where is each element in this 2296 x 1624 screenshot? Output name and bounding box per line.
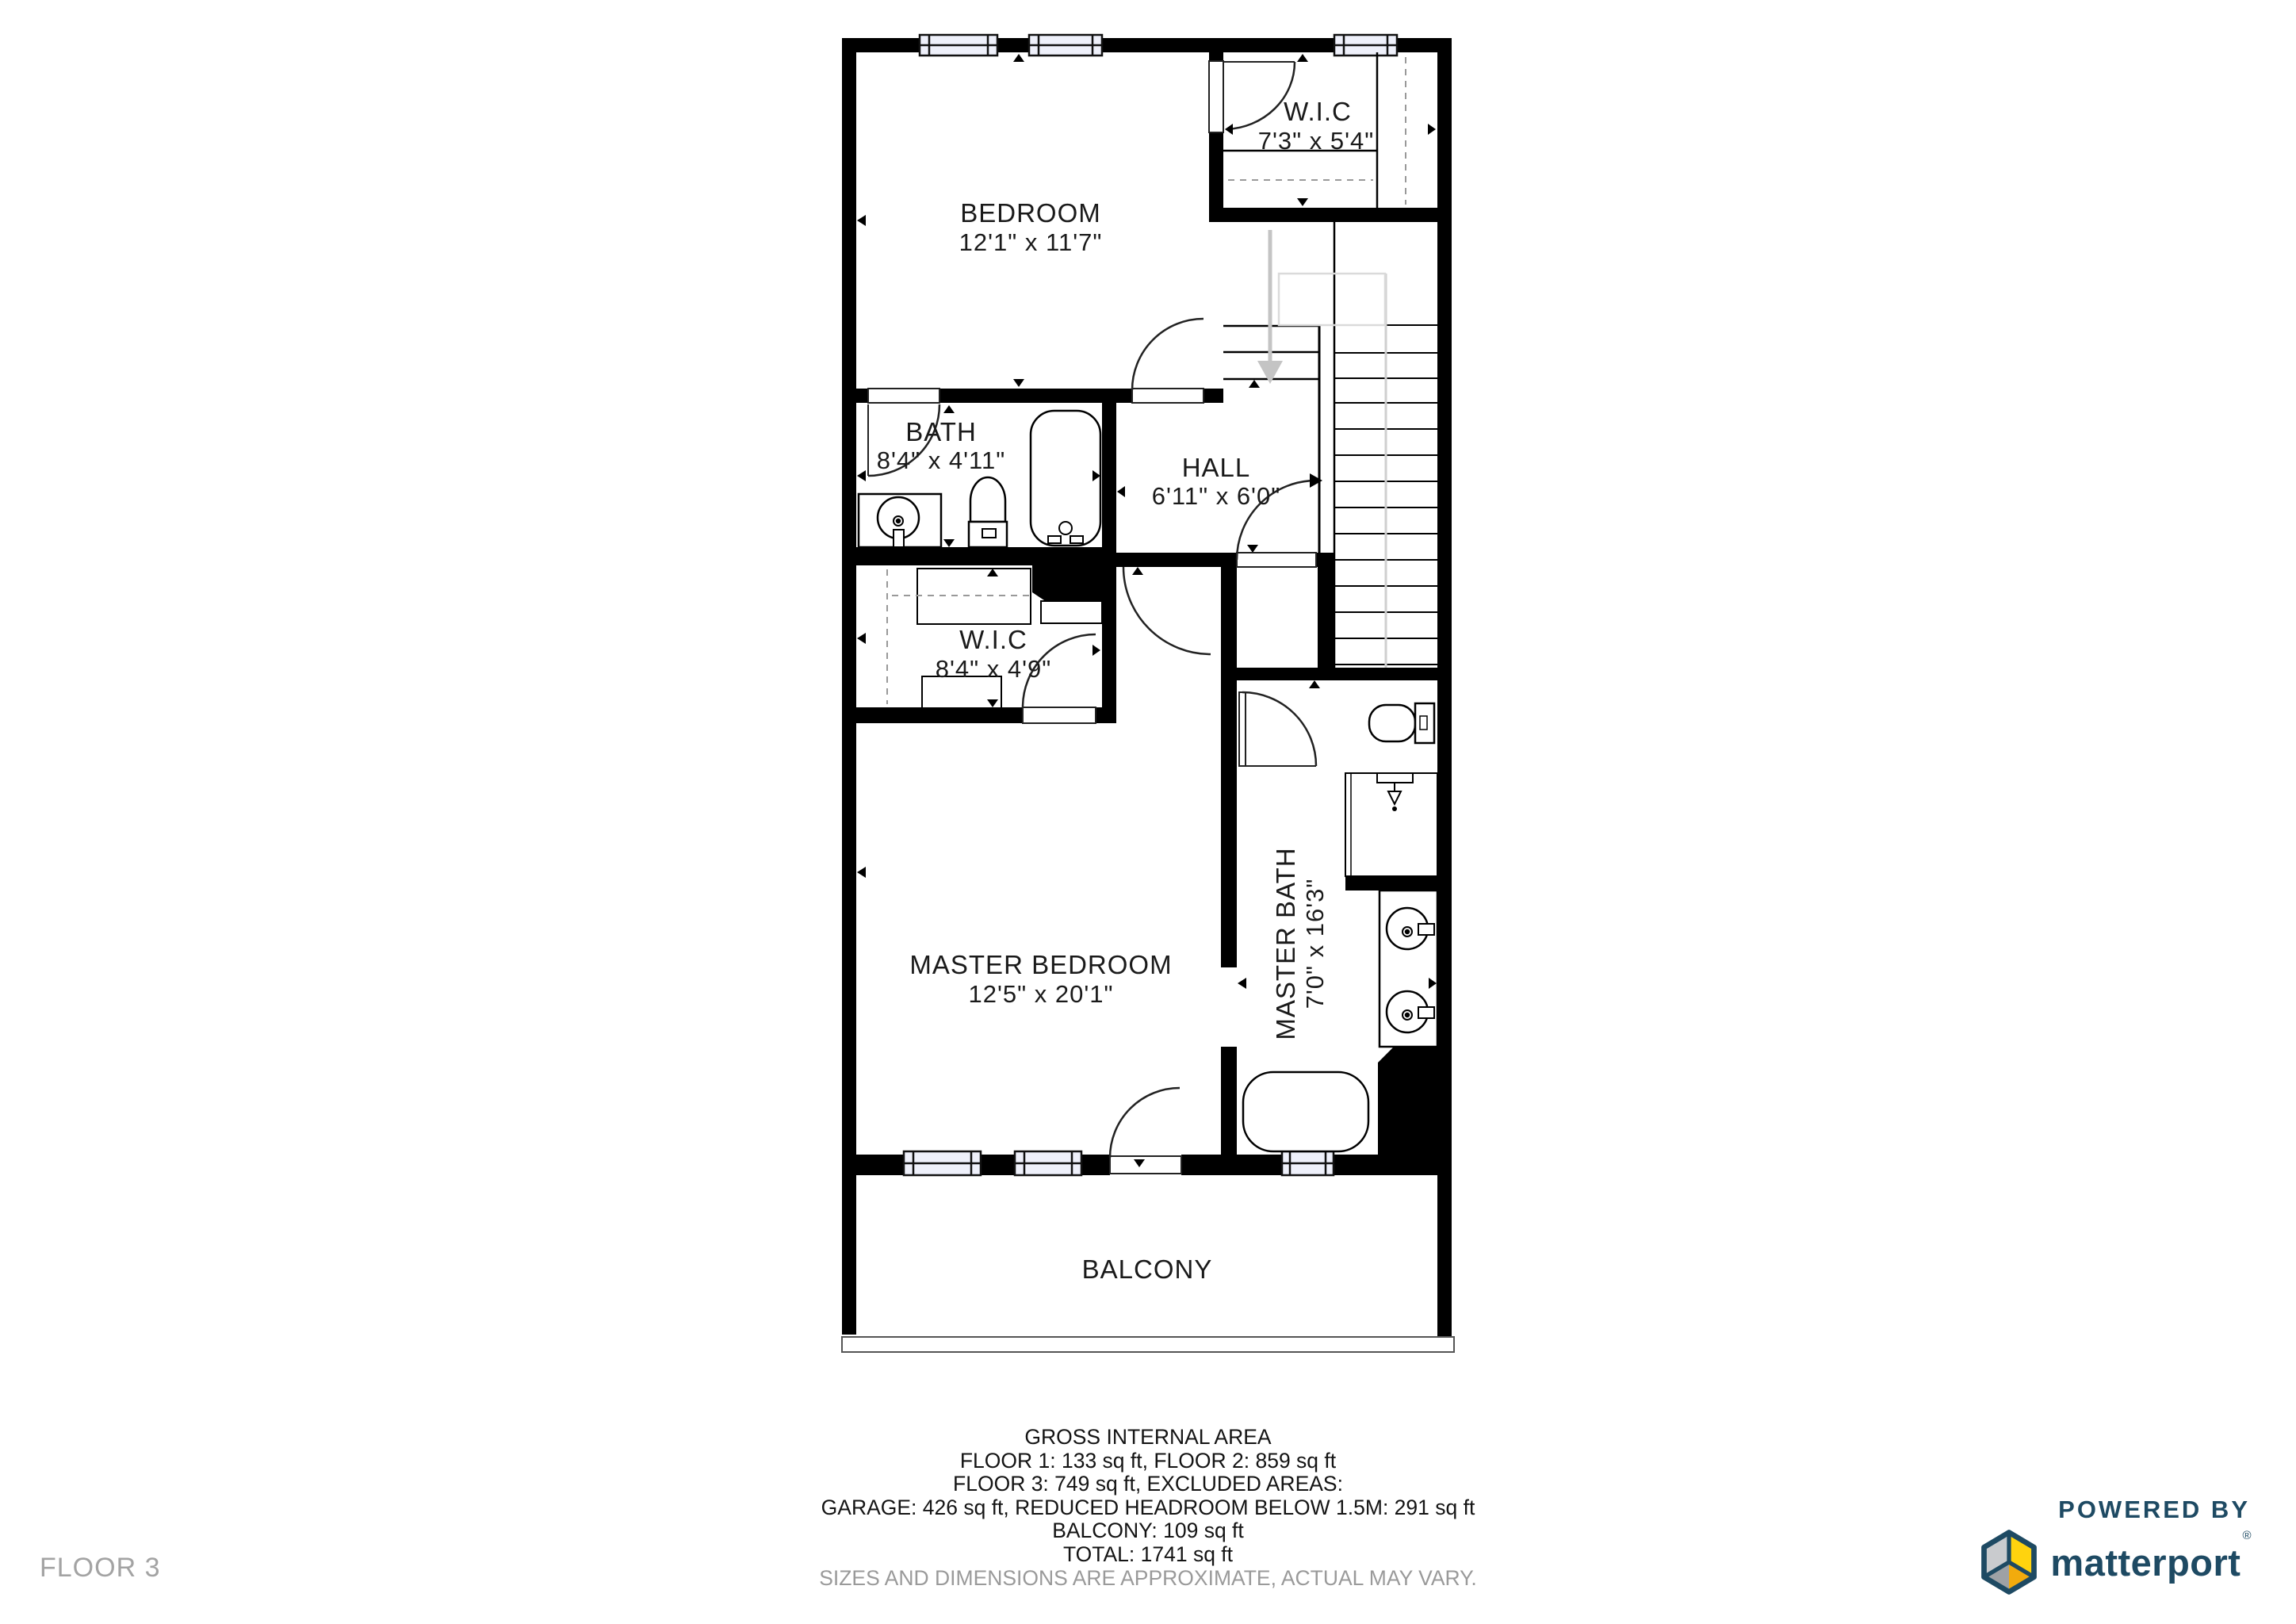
- room-label-bath: BATH: [905, 417, 977, 446]
- toilet: [969, 477, 1007, 547]
- door-leaf: [1132, 389, 1203, 403]
- door-arc: [1242, 692, 1316, 766]
- mbath-left-wall: [1221, 680, 1237, 967]
- window: [1029, 35, 1102, 56]
- door-arc: [1132, 319, 1203, 390]
- room-dims-bath: 8'4" x 4'11": [877, 446, 1005, 474]
- stair-hall-wall: [1318, 567, 1334, 668]
- area-summary-line: FLOOR 3: 749 sq ft, EXCLUDED AREAS:: [752, 1473, 1544, 1496]
- mbath-top-wall: [1221, 668, 1437, 680]
- right-wall: [1437, 38, 1452, 1337]
- window: [1282, 1151, 1334, 1175]
- window: [904, 1151, 981, 1175]
- stair-arrowhead: [1257, 361, 1283, 384]
- wall-seg: [1181, 1155, 1221, 1175]
- area-summary-disclaimer: SIZES AND DIMENSIONS ARE APPROXIMATE, AC…: [752, 1567, 1544, 1591]
- shower: [1345, 773, 1437, 876]
- room-dims-master-bath: 7'0" x 16'3": [1301, 879, 1329, 1009]
- area-summary-line: BALCONY: 109 sq ft: [752, 1519, 1544, 1543]
- room-label-master-bath: MASTER BATH: [1271, 847, 1300, 1040]
- floor-label: FLOOR 3: [40, 1553, 160, 1584]
- double-vanity: [1380, 891, 1437, 1047]
- window: [1015, 1151, 1081, 1175]
- area-summary-title: GROSS INTERNAL AREA: [752, 1426, 1544, 1450]
- bath-bottom-wall: [856, 547, 1116, 565]
- door-leaf: [1237, 553, 1316, 567]
- area-summary: GROSS INTERNAL AREA FLOOR 1: 133 sq ft, …: [752, 1426, 1544, 1590]
- door-leaf: [1023, 707, 1096, 723]
- wall-seg: [856, 389, 868, 403]
- door-leaf: [1239, 692, 1246, 766]
- room-dims-wic-master: 8'4" x 4'9": [936, 655, 1052, 683]
- vanity-sink: [859, 494, 941, 547]
- wic2-bottom-wall: [856, 707, 1023, 723]
- door-arc: [1110, 1088, 1180, 1158]
- mbath-left-wall: [1221, 1047, 1237, 1156]
- wall-seg: [1209, 52, 1223, 61]
- doorway: [868, 389, 939, 403]
- room-dims-bedroom: 12'1" x 11'7": [959, 228, 1103, 256]
- room-dims-wic-upper: 7'3" x 5'4": [1258, 127, 1375, 155]
- room-label-hall: HALL: [1182, 453, 1251, 482]
- powered-by-text: POWERED BY: [2058, 1496, 2250, 1524]
- bathtub: [1243, 1072, 1368, 1151]
- matterport-cube-icon: [1979, 1529, 2039, 1595]
- stair-landing-outline: [1279, 274, 1385, 325]
- wic-bottom-wall: [1209, 208, 1452, 222]
- floor-plan: BEDROOM 12'1" x 11'7" W.I.C 7'3" x 5'4" …: [0, 0, 2296, 1624]
- door-arc: [1123, 567, 1211, 654]
- wall-seg: [1096, 707, 1116, 723]
- wall-seg: [1203, 389, 1223, 403]
- matterport-wordmark: matterport®: [2050, 1544, 2250, 1581]
- room-dims-hall: 6'11" x 6'0": [1152, 482, 1280, 510]
- left-wall: [842, 38, 856, 1335]
- wall-block: [1032, 565, 1102, 600]
- door-leaf: [1110, 1156, 1181, 1174]
- wic2-right-wall: [1102, 565, 1116, 708]
- registered-mark: ®: [2242, 1529, 2252, 1542]
- void-block: [1378, 1047, 1437, 1155]
- window: [920, 35, 997, 56]
- toilet: [1369, 703, 1434, 743]
- room-label-wic-master: W.I.C: [959, 625, 1027, 654]
- room-dims-master-bedroom: 12'5" x 20'1": [968, 980, 1113, 1008]
- area-summary-line: FLOOR 1: 133 sq ft, FLOOR 2: 859 sq ft: [752, 1450, 1544, 1473]
- matterport-branding: POWERED BY matterport®: [1979, 1496, 2250, 1595]
- room-label-balcony: BALCONY: [1082, 1254, 1213, 1284]
- area-summary-line: GARAGE: 426 sq ft, REDUCED HEADROOM BELO…: [752, 1496, 1544, 1520]
- room-label-bedroom: BEDROOM: [960, 198, 1101, 228]
- bath-hall-wall: [1102, 389, 1116, 565]
- window: [1334, 35, 1397, 56]
- area-summary-total: TOTAL: 1741 sq ft: [752, 1543, 1544, 1567]
- room-label-wic-upper: W.I.C: [1284, 97, 1352, 126]
- room-label-master-bedroom: MASTER BEDROOM: [909, 950, 1172, 979]
- floorplan-page: BEDROOM 12'1" x 11'7" W.I.C 7'3" x 5'4" …: [0, 0, 2296, 1624]
- bathtub: [1031, 411, 1100, 546]
- shower-bottom-wall: [1345, 876, 1437, 891]
- hall-bottom-wall: [1116, 553, 1237, 567]
- door-leaf: [1209, 61, 1223, 132]
- balcony-railing: [842, 1337, 1454, 1352]
- bath-fixtures: [859, 411, 1100, 547]
- closet-left-wall: [1221, 567, 1237, 668]
